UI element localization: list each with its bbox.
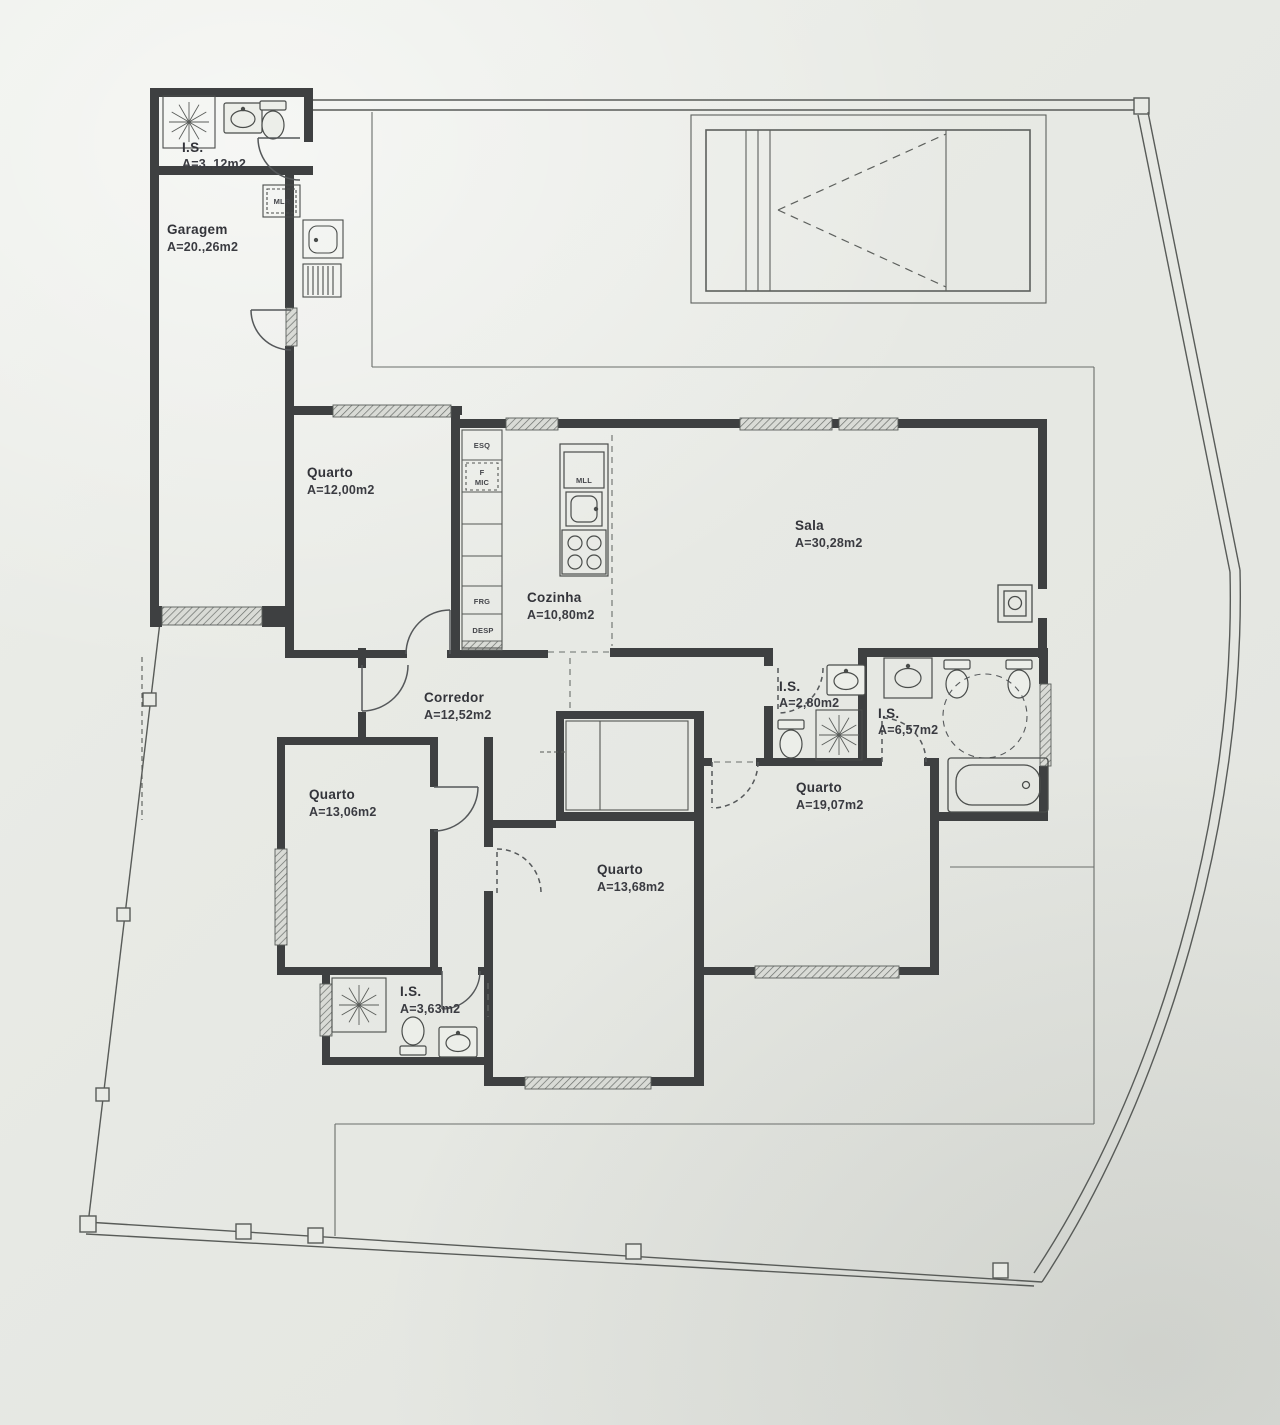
window	[1040, 684, 1051, 766]
pool-depth-line	[778, 210, 946, 287]
room-label-is-top: I.S.	[182, 140, 203, 155]
room-area-quarto-sw: A=13,06m2	[309, 805, 376, 819]
garage-gate	[162, 607, 262, 625]
room-label-is-suite: I.S.	[878, 706, 899, 721]
floorplan-drawing: I.S. A=3.,12m2 Garagem A=20.,26m2 Quarto…	[0, 0, 1280, 1425]
window	[525, 1077, 651, 1089]
washbasin	[439, 1027, 477, 1057]
door	[497, 849, 541, 893]
bidet	[1006, 660, 1032, 698]
drain-grate	[303, 264, 341, 297]
label-microwave: MIC	[475, 478, 490, 487]
door	[251, 310, 291, 350]
label-fridge: FRG	[474, 597, 490, 606]
bathroom-counter	[884, 658, 932, 698]
washbasin	[827, 665, 865, 695]
kitchen-counter	[560, 444, 608, 576]
room-area-corredor: A=12,52m2	[424, 708, 491, 722]
room-area-is-suite: A=6,57m2	[878, 723, 938, 737]
label-oven: F	[480, 468, 485, 477]
room-area-cozinha: A=10,80m2	[527, 608, 594, 622]
pool-depth-line	[778, 134, 946, 210]
room-label-corredor: Corredor	[424, 690, 485, 705]
toilet	[400, 1017, 426, 1055]
kitchen-stove	[562, 530, 606, 574]
washbasin	[224, 103, 262, 133]
label-washing-machine: MLR	[274, 197, 291, 206]
room-label-quarto-nw: Quarto	[307, 465, 353, 480]
room-label-is-sw: I.S.	[400, 984, 421, 999]
entrance-door	[362, 665, 408, 711]
dashed-lines	[488, 435, 754, 1017]
window	[286, 308, 297, 346]
room-area-garagem: A=20.,26m2	[167, 240, 238, 254]
room-area-is-top: A=3.,12m2	[182, 157, 246, 171]
window	[275, 849, 287, 945]
room-label-quarto-e: Quarto	[796, 780, 842, 795]
label-esq: ESQ	[474, 441, 490, 450]
shower	[816, 710, 862, 760]
door	[434, 787, 478, 831]
window	[462, 641, 502, 650]
shower	[332, 978, 386, 1032]
label-pantry: DESP	[472, 626, 493, 635]
room-label-quarto-s: Quarto	[597, 862, 643, 877]
property-boundary	[80, 98, 1240, 1286]
fence-posts	[80, 693, 1008, 1278]
kitchen-column	[462, 430, 502, 648]
room-label-is-small: I.S.	[779, 679, 800, 694]
window	[740, 418, 832, 430]
window	[333, 405, 451, 417]
kitchen-sink	[566, 492, 602, 526]
room-label-quarto-sw: Quarto	[309, 787, 355, 802]
room-area-is-sw: A=3,63m2	[400, 1002, 460, 1016]
room-area-quarto-nw: A=12,00m2	[307, 483, 374, 497]
room-label-garagem: Garagem	[167, 222, 228, 237]
door	[406, 610, 450, 654]
window	[839, 418, 898, 430]
window	[755, 966, 899, 978]
pool-deck	[691, 115, 1046, 303]
toilet	[260, 101, 286, 139]
toilet	[778, 720, 804, 758]
room-area-is-small: A=2,80m2	[779, 696, 839, 710]
room-area-quarto-s: A=13,68m2	[597, 880, 664, 894]
pool-basin	[706, 130, 1030, 291]
room-area-quarto-e: A=19,07m2	[796, 798, 863, 812]
window	[506, 418, 558, 430]
fireplace	[998, 585, 1032, 622]
bathtub	[948, 758, 1048, 812]
door	[712, 762, 758, 808]
room-label-sala: Sala	[795, 518, 824, 533]
floorplan-page: I.S. A=3.,12m2 Garagem A=20.,26m2 Quarto…	[0, 0, 1280, 1425]
swimming-pool	[691, 115, 1046, 303]
label-dishwasher: MLL	[576, 476, 592, 485]
room-area-sala: A=30,28m2	[795, 536, 862, 550]
window	[320, 984, 332, 1036]
laundry-sink	[303, 220, 343, 258]
room-label-cozinha: Cozinha	[527, 590, 582, 605]
